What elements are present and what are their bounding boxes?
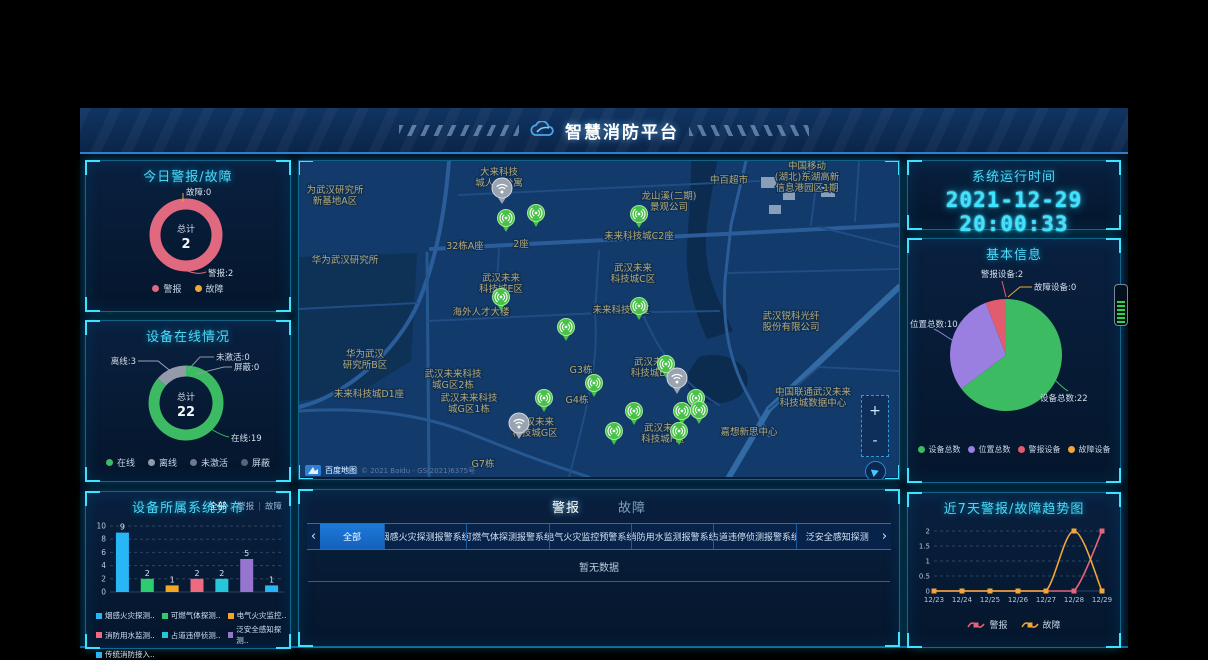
map-label: 武汉未来科技城C区 bbox=[611, 262, 656, 285]
battery-indicator bbox=[1114, 284, 1128, 326]
map-label: 武汉锐科光纤股份有限公司 bbox=[762, 310, 820, 333]
legend-item[interactable]: 传统消防接入.. bbox=[96, 649, 155, 660]
navigate-arrow-icon bbox=[871, 467, 880, 477]
map-label: 未来科技城D1座 bbox=[334, 388, 405, 400]
dashboard: 智慧消防平台 今日警报/故障 总计2故障:0警报:2 警报故障 设备在线情况 总… bbox=[80, 108, 1128, 648]
online-donut-chart: 总计22离线:3未激活:0屏蔽:0在线:19 bbox=[86, 345, 290, 455]
header-right-slashes-decoration bbox=[689, 125, 809, 136]
system-filter-tabs: 全部警报故障 bbox=[209, 500, 282, 512]
filter-tab-全部[interactable]: 全部 bbox=[209, 502, 226, 512]
map-label: 为武汉研究所新基地A区 bbox=[306, 184, 364, 207]
svg-text:12/25: 12/25 bbox=[980, 596, 1000, 604]
basic-info-pie-chart: 警报设备:2故障设备:0位置总数:10设备总数:22 bbox=[908, 263, 1112, 443]
alarm-fault-list-panel: 警报故障 ‹ 全部烟感火灾探测报警系统可燃气体探测报警系统电气火灾监控预警系统消… bbox=[298, 489, 900, 647]
system-distribution-panel: 设备所属系统分布 全部警报故障 02468109212251 烟感火灾探测..可… bbox=[85, 491, 291, 649]
svg-text:12/24: 12/24 bbox=[952, 596, 973, 604]
page-title: 智慧消防平台 bbox=[565, 118, 679, 143]
map-provider-name[interactable]: 百度地图 bbox=[325, 465, 357, 476]
subtab-泛安全感知探测[interactable]: 泛安全感知探测 bbox=[796, 524, 878, 549]
map-label: 未来科技城C2座 bbox=[604, 230, 674, 242]
subtab-烟感火灾探测报警系统[interactable]: 烟感火灾探测报警系统 bbox=[384, 524, 466, 549]
map-label: 中国联通武汉未来科技城数据中心 bbox=[775, 386, 852, 409]
svg-text:10: 10 bbox=[96, 522, 106, 531]
filter-tab-故障[interactable]: 故障 bbox=[254, 502, 282, 512]
trend-chart-legend: 警报故障 bbox=[908, 618, 1120, 631]
center-column: 大来科技城人才公寓中百超市为武汉研究所新基地A区龙山溪(二期)景观公司中国移动(… bbox=[298, 160, 900, 649]
svg-text:4: 4 bbox=[101, 561, 106, 570]
map-copyright: © 2021 Baidu - GS(2021)6375号 bbox=[361, 466, 475, 476]
locate-button[interactable] bbox=[865, 461, 886, 480]
tab-故障[interactable]: 故障 bbox=[618, 497, 646, 516]
battery-level bbox=[1117, 301, 1125, 323]
svg-text:9: 9 bbox=[120, 523, 125, 532]
map-label: 32栋A座 bbox=[446, 240, 484, 252]
legend-item[interactable]: 离线 bbox=[148, 456, 177, 469]
svg-text:12/29: 12/29 bbox=[1092, 596, 1112, 604]
screen-background: 智慧消防平台 今日警报/故障 总计2故障:0警报:2 警报故障 设备在线情况 总… bbox=[0, 0, 1208, 650]
svg-text:5: 5 bbox=[244, 549, 249, 558]
map-attribution: 百度地图 © 2021 Baidu - GS(2021)6375号 bbox=[305, 465, 475, 476]
svg-text:2: 2 bbox=[219, 569, 224, 578]
svg-text:1.5: 1.5 bbox=[919, 543, 930, 551]
svg-text:2: 2 bbox=[194, 569, 199, 578]
header-left-slashes-decoration bbox=[399, 125, 519, 136]
svg-text:屏蔽:0: 屏蔽:0 bbox=[234, 362, 259, 373]
basic-info-panel: 基本信息 警报设备:2故障设备:0位置总数:10设备总数:22 设备总数位置总数… bbox=[907, 238, 1121, 483]
filter-tab-警报[interactable]: 警报 bbox=[226, 502, 254, 512]
map-label: 武汉未来科技城G区2栋 bbox=[424, 368, 482, 391]
trend-line-chart: 00.511.5212/2312/2412/2512/2612/2712/281… bbox=[908, 517, 1112, 617]
device-online-panel: 设备在线情况 总计22离线:3未激活:0屏蔽:0在线:19 在线离线未激活屏蔽 bbox=[85, 320, 291, 482]
svg-text:设备总数:22: 设备总数:22 bbox=[1040, 393, 1088, 404]
panel-title: 基本信息 bbox=[908, 239, 1120, 263]
baidu-maps-logo-icon bbox=[305, 465, 321, 476]
map-label: 嘉想新思中心 bbox=[720, 426, 778, 438]
svg-text:12/28: 12/28 bbox=[1064, 596, 1084, 604]
svg-text:总计: 总计 bbox=[177, 391, 195, 403]
map-label: G3栋 bbox=[570, 364, 593, 376]
system-runtime-clock: 2021-12-29 20:00:33 bbox=[908, 188, 1120, 236]
svg-text:8: 8 bbox=[101, 535, 106, 544]
svg-text:0: 0 bbox=[101, 588, 106, 597]
svg-text:6: 6 bbox=[101, 548, 106, 557]
legend-item[interactable]: 可燃气体探测.. bbox=[162, 610, 221, 621]
legend-item[interactable]: 电气火灾监控.. bbox=[228, 610, 290, 621]
panel-title: 近7天警报/故障趋势图 bbox=[908, 493, 1120, 517]
today-alarm-fault-panel: 今日警报/故障 总计2故障:0警报:2 警报故障 bbox=[85, 160, 291, 312]
map-zoom-control: + - bbox=[861, 395, 889, 457]
legend-item[interactable]: 泛安全感知探测.. bbox=[228, 624, 290, 646]
system-subtabs: 全部烟感火灾探测报警系统可燃气体探测报警系统电气火灾监控预警系统消防用水监测报警… bbox=[320, 524, 878, 549]
map-label: 中百超市 bbox=[710, 174, 749, 186]
panel-title: 设备在线情况 bbox=[86, 321, 290, 345]
systems-bar-chart: 02468109212251 bbox=[86, 516, 290, 608]
subtab-prev-arrow[interactable]: ‹ bbox=[307, 524, 320, 549]
panel-title: 系统运行时间 bbox=[908, 161, 1120, 185]
empty-data-text: 暂无数据 bbox=[299, 550, 899, 581]
online-chart-legend: 在线离线未激活屏蔽 bbox=[86, 456, 290, 469]
svg-text:故障设备:0: 故障设备:0 bbox=[1034, 282, 1076, 293]
svg-text:1: 1 bbox=[170, 575, 175, 584]
systems-chart-legend: 烟感火灾探测..可燃气体探测..电气火灾监控..消防用水监测..占道违停侦测..… bbox=[86, 608, 290, 660]
zoom-in-button[interactable]: + bbox=[869, 404, 881, 418]
tab-警报[interactable]: 警报 bbox=[552, 497, 580, 516]
left-column: 今日警报/故障 总计2故障:0警报:2 警报故障 设备在线情况 总计22离线:3… bbox=[85, 160, 291, 649]
svg-text:12/27: 12/27 bbox=[1036, 596, 1056, 604]
svg-text:警报:2: 警报:2 bbox=[208, 268, 233, 279]
svg-text:2: 2 bbox=[181, 237, 190, 252]
svg-text:位置总数:10: 位置总数:10 bbox=[910, 319, 958, 330]
today-donut-chart: 总计2故障:0警报:2 bbox=[86, 185, 290, 281]
system-runtime-panel: 系统运行时间 2021-12-29 20:00:33 bbox=[907, 160, 1121, 230]
legend-item[interactable]: 故障设备 bbox=[1068, 444, 1111, 455]
svg-text:故障:0: 故障:0 bbox=[186, 187, 211, 198]
legend-item[interactable]: 未激活 bbox=[190, 456, 228, 469]
map-label: 华为武汉研究所B区 bbox=[343, 348, 388, 371]
trend-panel: 近7天警报/故障趋势图 00.511.5212/2312/2412/2512/2… bbox=[907, 492, 1121, 648]
city-map[interactable]: 大来科技城人才公寓中百超市为武汉研究所新基地A区龙山溪(二期)景观公司中国移动(… bbox=[299, 161, 899, 477]
legend-item[interactable]: 占道违停侦测.. bbox=[162, 624, 221, 646]
legend-item[interactable]: 烟感火灾探测.. bbox=[96, 610, 155, 621]
legend-item[interactable]: 警报 bbox=[152, 282, 181, 295]
svg-text:未激活:0: 未激活:0 bbox=[216, 352, 250, 363]
system-subtab-bar: ‹ 全部烟感火灾探测报警系统可燃气体探测报警系统电气火灾监控预警系统消防用水监测… bbox=[307, 523, 891, 550]
map-label: 武汉未来科技城G区1栋 bbox=[440, 392, 498, 415]
legend-item[interactable]: 警报 bbox=[967, 618, 1007, 631]
subtab-消防用水监测报警系统[interactable]: 消防用水监测报警系统 bbox=[631, 524, 713, 549]
legend-item[interactable]: 故障 bbox=[195, 282, 224, 295]
subtab-占道违停侦测报警系统[interactable]: 占道违停侦测报警系统 bbox=[713, 524, 795, 549]
svg-text:0: 0 bbox=[926, 588, 930, 596]
list-divider bbox=[308, 581, 890, 582]
legend-item[interactable]: 消防用水监测.. bbox=[96, 624, 155, 646]
cloud-logo-icon bbox=[529, 121, 555, 139]
map-label: 2座 bbox=[513, 238, 529, 250]
dashboard-content: 今日警报/故障 总计2故障:0警报:2 警报故障 设备在线情况 总计22离线:3… bbox=[80, 154, 1128, 649]
panel-title: 今日警报/故障 bbox=[86, 161, 290, 185]
svg-text:2: 2 bbox=[101, 574, 106, 583]
basic-info-legend: 设备总数位置总数警报设备故障设备 bbox=[908, 444, 1120, 455]
legend-item[interactable]: 屏蔽 bbox=[241, 456, 270, 469]
zoom-out-button[interactable]: - bbox=[872, 434, 877, 448]
legend-item[interactable]: 故障 bbox=[1021, 618, 1061, 631]
alarm-fault-tabs: 警报故障 bbox=[299, 490, 899, 516]
svg-text:1: 1 bbox=[269, 575, 274, 584]
right-column: 系统运行时间 2021-12-29 20:00:33 基本信息 警报设备:2故障… bbox=[907, 160, 1121, 649]
legend-item[interactable]: 设备总数 bbox=[918, 444, 961, 455]
legend-item[interactable]: 位置总数 bbox=[968, 444, 1011, 455]
map-label: G4栋 bbox=[566, 394, 589, 406]
today-chart-legend: 警报故障 bbox=[86, 282, 290, 295]
subtab-next-arrow[interactable]: › bbox=[878, 524, 891, 549]
app-header: 智慧消防平台 bbox=[80, 108, 1128, 154]
svg-text:12/26: 12/26 bbox=[1008, 596, 1029, 604]
svg-text:在线:19: 在线:19 bbox=[231, 433, 262, 444]
svg-text:总计: 总计 bbox=[177, 223, 195, 235]
svg-text:2: 2 bbox=[145, 569, 150, 578]
subtab-电气火灾监控预警系统[interactable]: 电气火灾监控预警系统 bbox=[549, 524, 631, 549]
svg-text:22: 22 bbox=[177, 405, 195, 420]
subtab-全部[interactable]: 全部 bbox=[320, 524, 384, 549]
svg-text:1: 1 bbox=[926, 558, 930, 566]
svg-text:0.5: 0.5 bbox=[919, 573, 930, 581]
legend-item[interactable]: 警报设备 bbox=[1018, 444, 1061, 455]
map-label: 华为武汉研究所 bbox=[312, 254, 379, 266]
svg-text:离线:3: 离线:3 bbox=[111, 356, 136, 367]
legend-item[interactable]: 在线 bbox=[106, 456, 135, 469]
svg-text:2: 2 bbox=[926, 528, 930, 536]
svg-text:警报设备:2: 警报设备:2 bbox=[981, 269, 1023, 280]
subtab-可燃气体探测报警系统[interactable]: 可燃气体探测报警系统 bbox=[466, 524, 548, 549]
map-panel[interactable]: 大来科技城人才公寓中百超市为武汉研究所新基地A区龙山溪(二期)景观公司中国移动(… bbox=[298, 160, 900, 480]
svg-text:12/23: 12/23 bbox=[924, 596, 944, 604]
